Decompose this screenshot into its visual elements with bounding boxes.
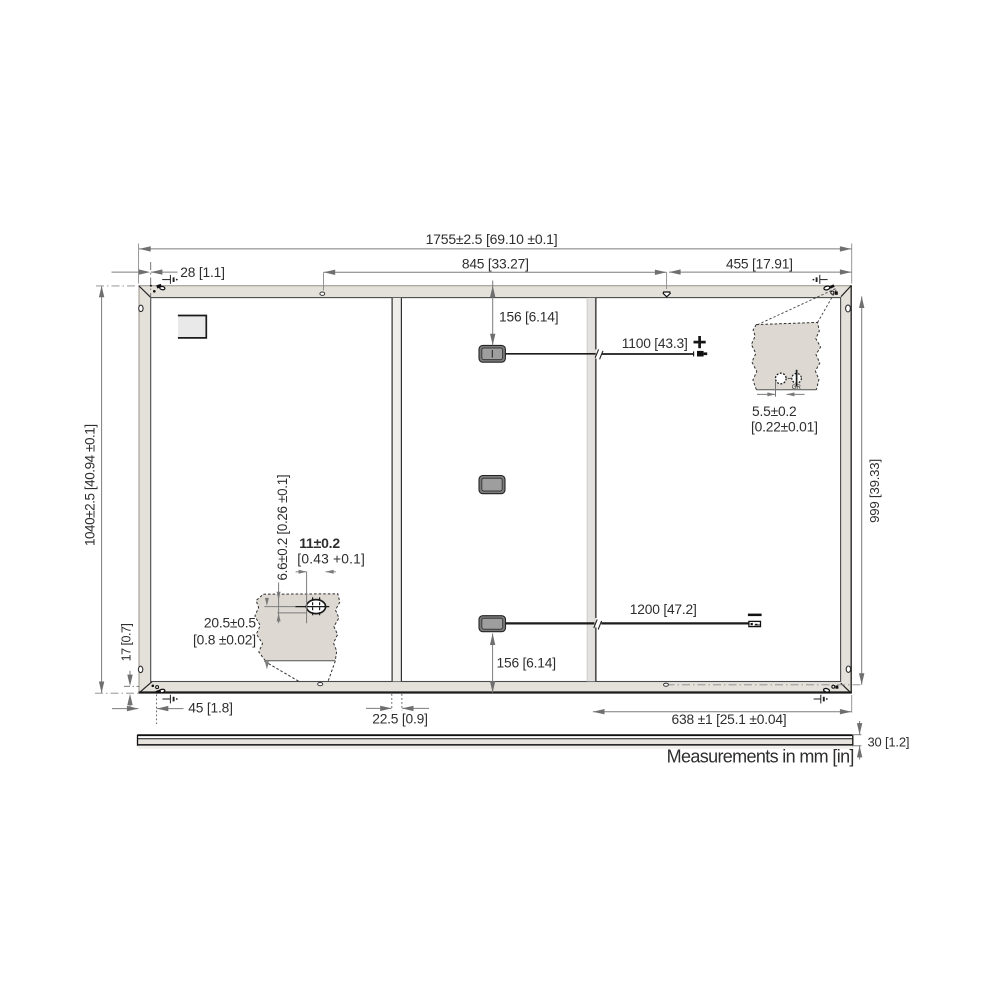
- svg-text:[0.43 +0.1]: [0.43 +0.1]: [297, 552, 365, 567]
- svg-text:45 [1.8]: 45 [1.8]: [188, 700, 232, 715]
- svg-text:GR: GR: [792, 384, 802, 391]
- svg-text:22.5 [0.9]: 22.5 [0.9]: [372, 712, 428, 727]
- svg-text:5.5±0.2: 5.5±0.2: [752, 404, 797, 419]
- svg-text:638 ±1 [25.1 ±0.04]: 638 ±1 [25.1 ±0.04]: [672, 712, 787, 727]
- svg-text:Measurements in mm [in]: Measurements in mm [in]: [667, 747, 854, 767]
- svg-text:1100 [43.3]: 1100 [43.3]: [622, 336, 688, 351]
- svg-text:20.5±0.5: 20.5±0.5: [204, 616, 257, 631]
- svg-text:455 [17.91]: 455 [17.91]: [726, 256, 793, 271]
- svg-text:28 [1.1]: 28 [1.1]: [180, 265, 224, 280]
- svg-text:1755±2.5 [69.10 ±0.1]: 1755±2.5 [69.10 ±0.1]: [426, 231, 558, 247]
- svg-text:[0.8 ±0.02]: [0.8 ±0.02]: [193, 633, 256, 648]
- svg-text:156 [6.14]: 156 [6.14]: [497, 655, 556, 670]
- svg-text:999 [39.33]: 999 [39.33]: [867, 459, 882, 523]
- svg-text:1200 [47.2]: 1200 [47.2]: [630, 602, 697, 617]
- svg-text:30 [1.2]: 30 [1.2]: [868, 734, 910, 749]
- svg-text:17 [0.7]: 17 [0.7]: [119, 624, 133, 662]
- svg-text:6.6±0.2 [0.26 ±0.1]: 6.6±0.2 [0.26 ±0.1]: [275, 475, 290, 581]
- svg-text:156 [6.14]: 156 [6.14]: [499, 310, 558, 325]
- svg-text:11±0.2: 11±0.2: [299, 535, 340, 551]
- svg-text:845 [33.27]: 845 [33.27]: [462, 256, 529, 271]
- svg-text:[0.22±0.01]: [0.22±0.01]: [751, 419, 818, 434]
- svg-text:1040±2.5 [40.94 ±0.1]: 1040±2.5 [40.94 ±0.1]: [82, 424, 97, 546]
